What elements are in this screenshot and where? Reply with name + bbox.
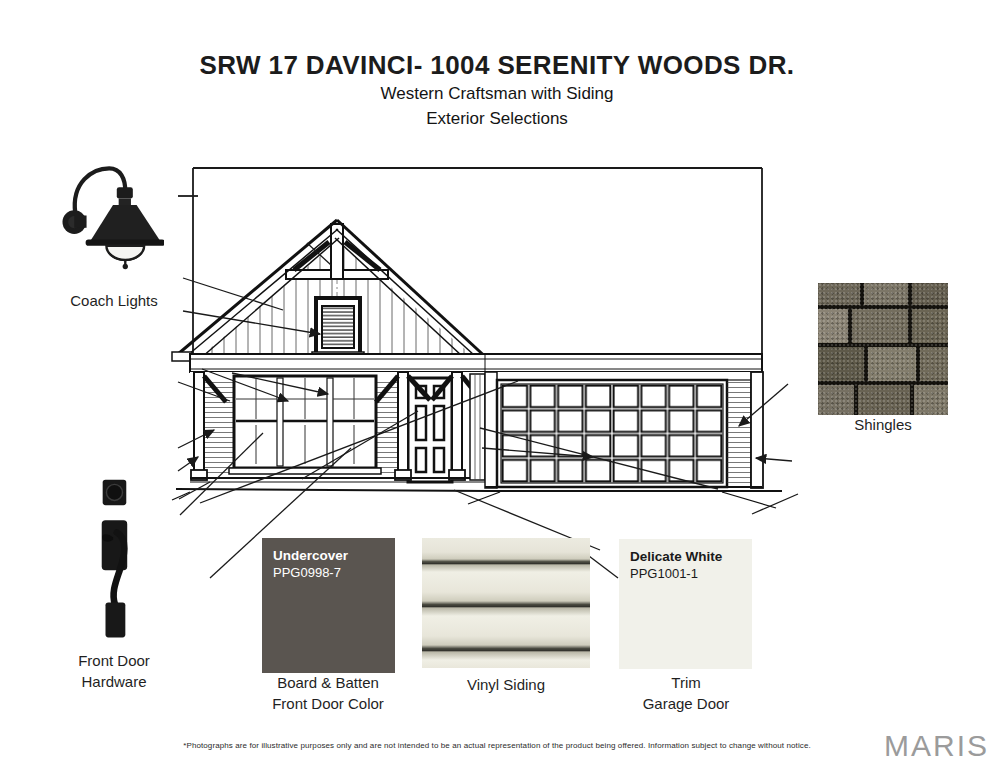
page-subtitle: Western Craftsman with Siding	[0, 84, 994, 104]
swatch-color-name: Delicate White	[630, 548, 741, 565]
vinyl-siding-caption: Vinyl Siding	[422, 674, 590, 695]
coach-lights-label: Coach Lights	[40, 290, 188, 311]
board-batten-color-swatch: Undercover PPG0998-7	[262, 538, 395, 673]
exterior-selections-flyer: SRW 17 DAVINCI- 1004 SERENITY WOODS DR. …	[0, 0, 994, 768]
disclaimer-text: *Photographs are for illustrative purpos…	[0, 741, 994, 750]
swatch-color-code: PPG1001-1	[630, 565, 741, 582]
shingle-texture	[818, 283, 948, 415]
swatch-color-code: PPG0998-7	[273, 564, 384, 581]
vinyl-siding-photo	[422, 538, 590, 668]
page-title: SRW 17 DAVINCI- 1004 SERENITY WOODS DR.	[0, 50, 994, 81]
trim-color-swatch: Delicate White PPG1001-1	[619, 539, 752, 669]
trim-caption: Trim Garage Door	[595, 672, 777, 714]
shingles-label: Shingles	[810, 414, 956, 435]
maris-watermark: MARIS	[884, 729, 989, 763]
front-door-hardware-image	[97, 474, 131, 644]
shingles-photo	[818, 283, 948, 415]
front-door-hardware-label: Front Door Hardware	[40, 650, 188, 692]
board-batten-caption: Board & Batten Front Door Color	[237, 672, 419, 714]
swatch-color-name: Undercover	[273, 547, 384, 564]
page-subtitle-2: Exterior Selections	[0, 109, 994, 129]
coach-light-image	[62, 160, 164, 288]
